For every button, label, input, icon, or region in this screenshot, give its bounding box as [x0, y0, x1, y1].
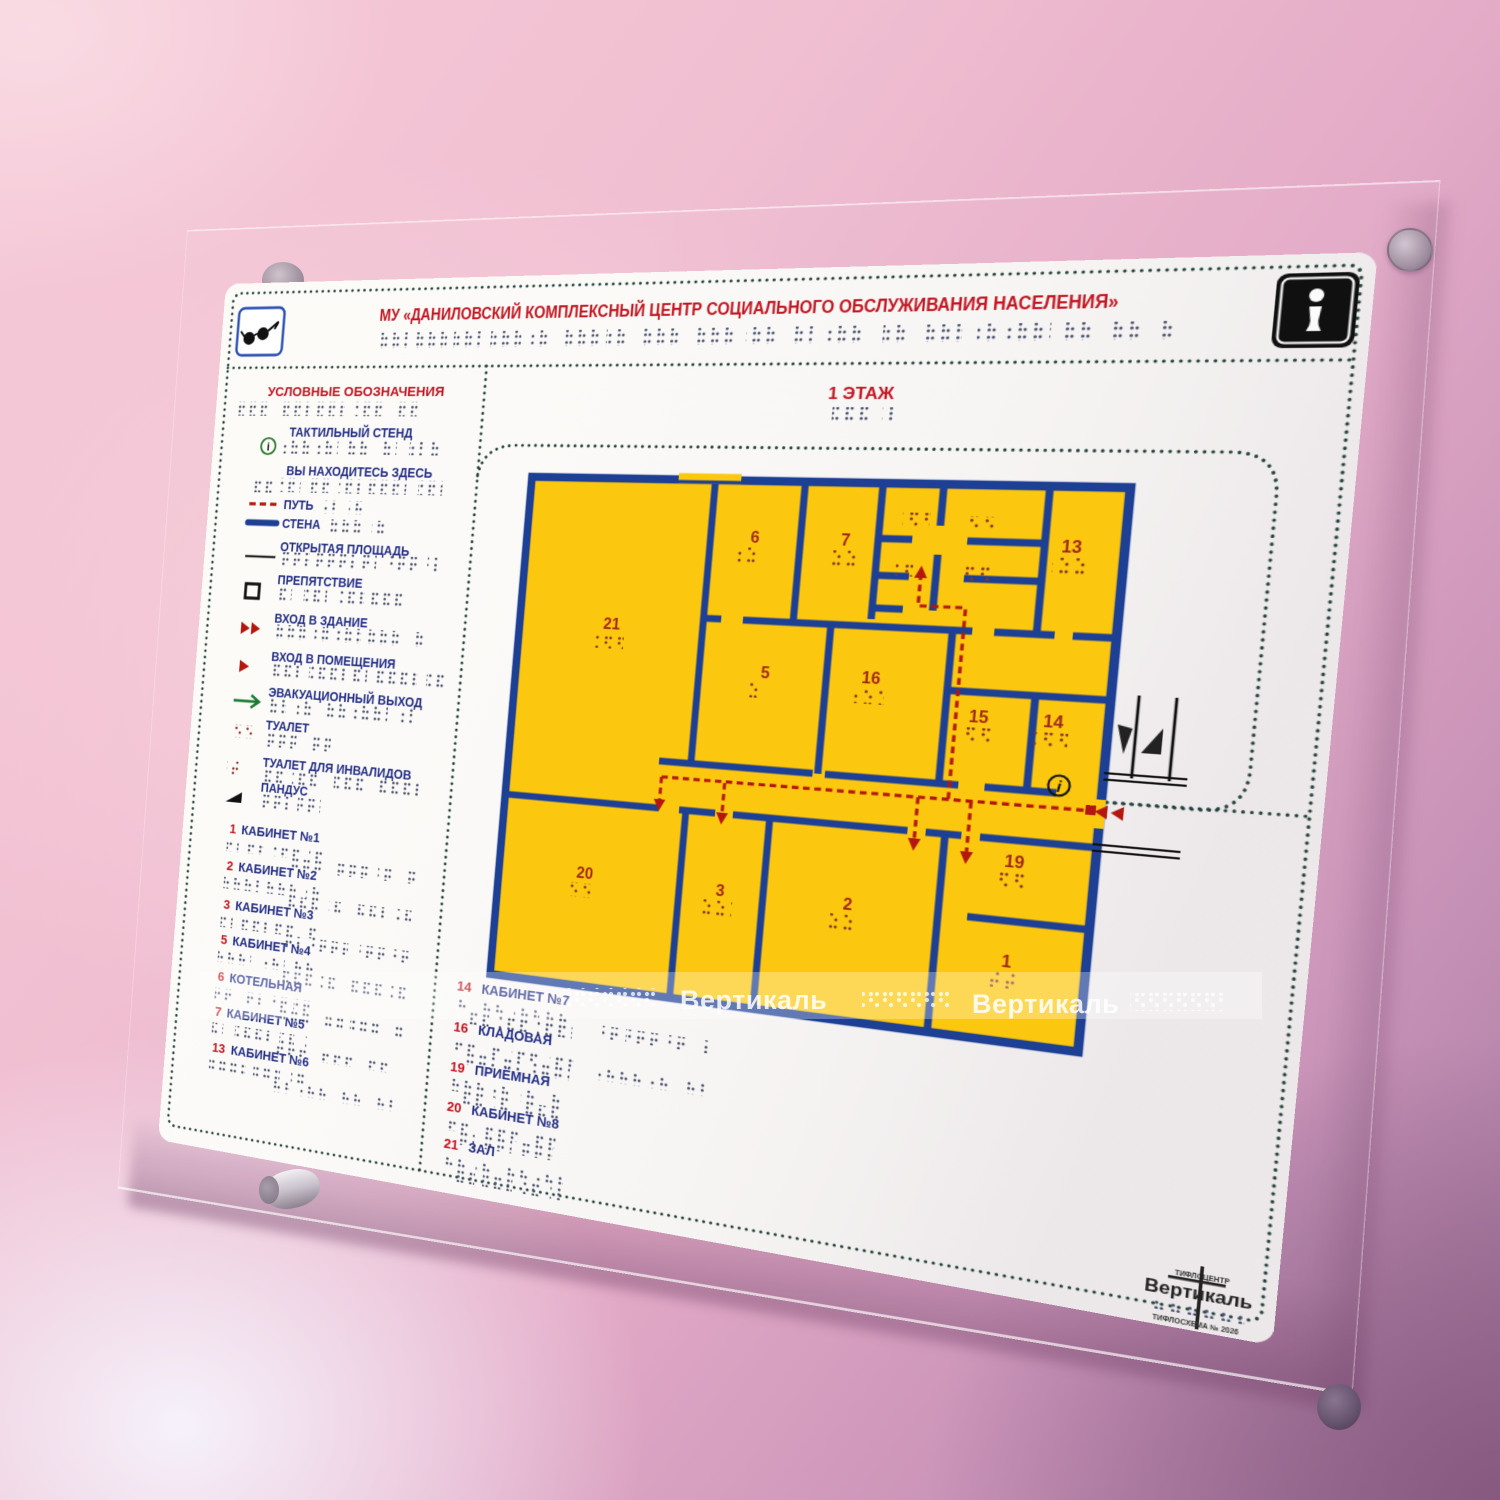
svg-text:Вертикаль: Вертикаль [972, 989, 1119, 1019]
svg-text:Вертикаль: Вертикаль [680, 985, 827, 1015]
